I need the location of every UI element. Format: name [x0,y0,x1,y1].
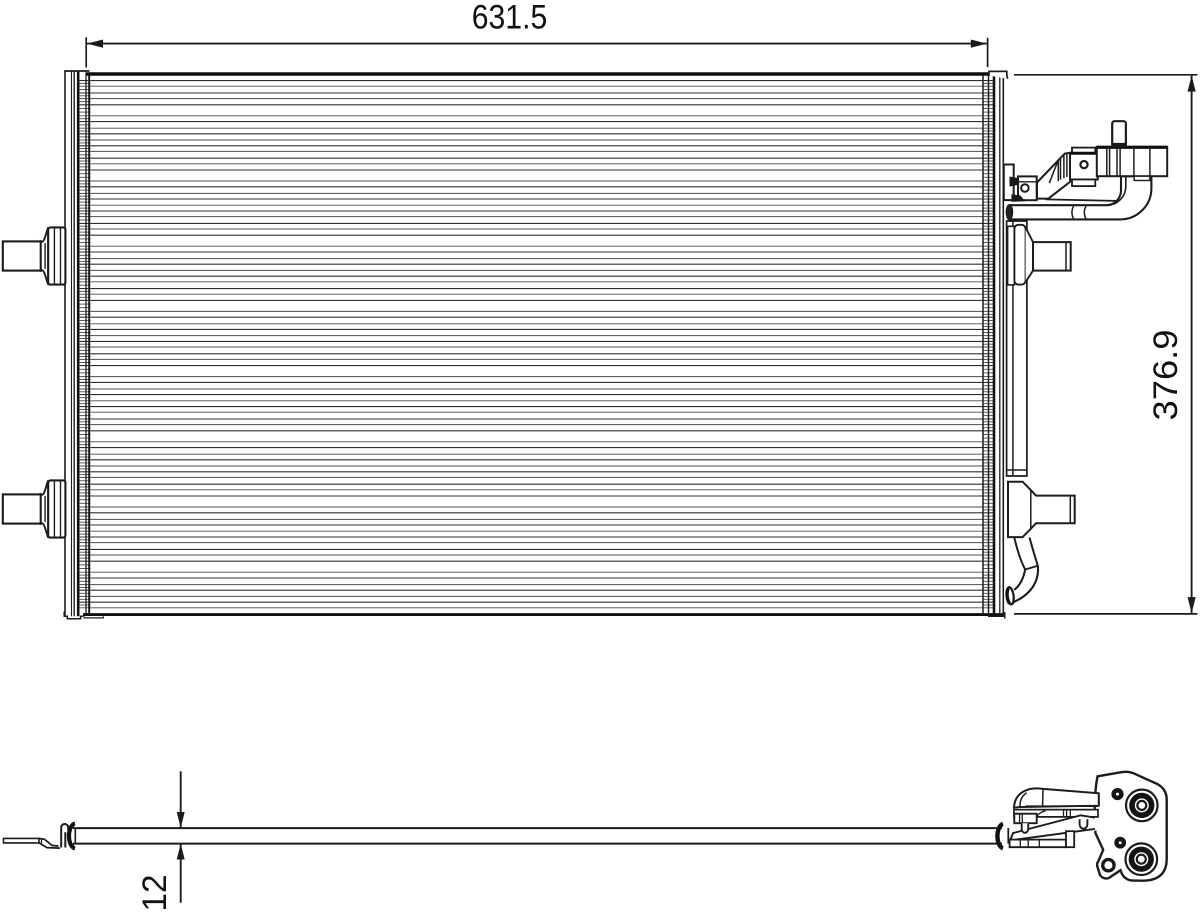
svg-text:376.9: 376.9 [1147,330,1185,421]
svg-text:12: 12 [136,875,174,912]
svg-text:631.5: 631.5 [472,0,548,36]
